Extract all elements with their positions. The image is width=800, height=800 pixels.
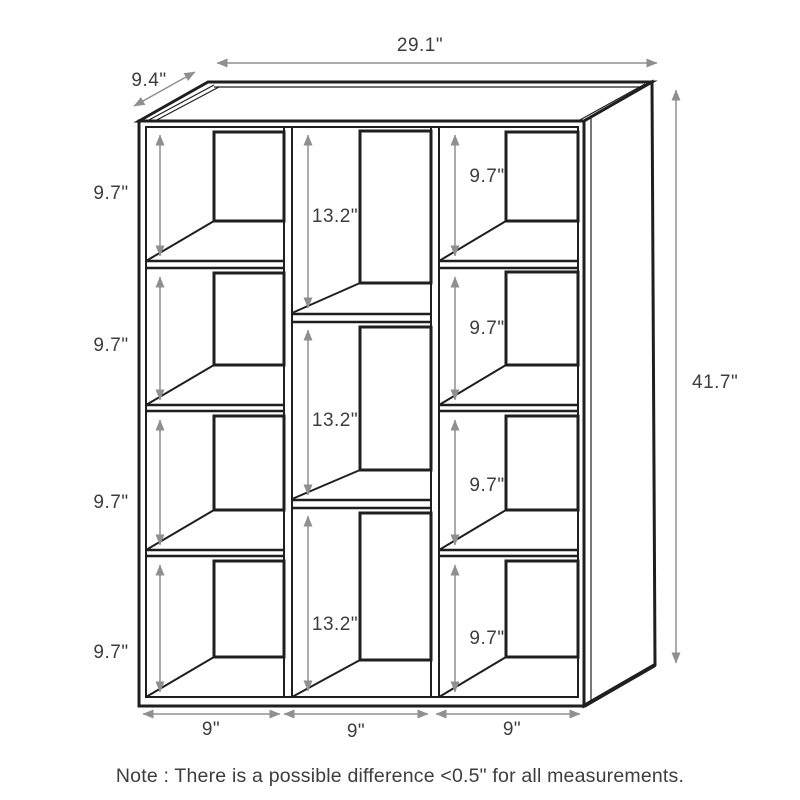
back-panel (506, 132, 578, 221)
back-panel (214, 132, 284, 221)
right-cubby-label-3: 9.7" (469, 475, 504, 496)
cube-organizer-dimension-diagram: 29.1" 9.4" 41.7" 9.7" 9.7" 9.7" 9.7" 13.… (0, 0, 800, 800)
back-panel (506, 416, 578, 510)
left-width-label: 9" (202, 719, 220, 740)
overall-height-label: 41.7" (692, 372, 738, 393)
left-cubby-label-4: 9.7" (93, 642, 128, 663)
right-cubby-label-4: 9.7" (469, 628, 504, 649)
back-panel (360, 327, 431, 470)
diagram-page: 29.1" 9.4" 41.7" 9.7" 9.7" 9.7" 9.7" 13.… (0, 0, 800, 800)
back-panel (360, 513, 431, 660)
back-panel (214, 416, 284, 510)
measurement-note: Note : There is a possible difference <0… (116, 765, 684, 787)
overall-width-label: 29.1" (397, 35, 443, 56)
back-panel (214, 561, 284, 657)
right-width-label: 9" (503, 719, 521, 740)
left-cubby-label-3: 9.7" (93, 492, 128, 513)
back-panel (360, 131, 431, 283)
middle-cubby-label-3: 13.2" (312, 614, 358, 635)
left-cubby-label-1: 9.7" (93, 183, 128, 204)
back-panel (214, 273, 284, 365)
middle-width-label: 9" (347, 721, 365, 742)
back-panel (506, 272, 578, 365)
top-face (139, 82, 652, 121)
middle-cubby-label-2: 13.2" (312, 410, 358, 431)
back-panel (506, 561, 578, 657)
right-cubby-label-1: 9.7" (469, 166, 504, 187)
left-cubby-label-2: 9.7" (93, 335, 128, 356)
right-cubby-label-2: 9.7" (469, 318, 504, 339)
side-face (584, 82, 655, 706)
middle-cubby-label-1: 13.2" (312, 206, 358, 227)
overall-depth-label: 9.4" (131, 70, 166, 91)
